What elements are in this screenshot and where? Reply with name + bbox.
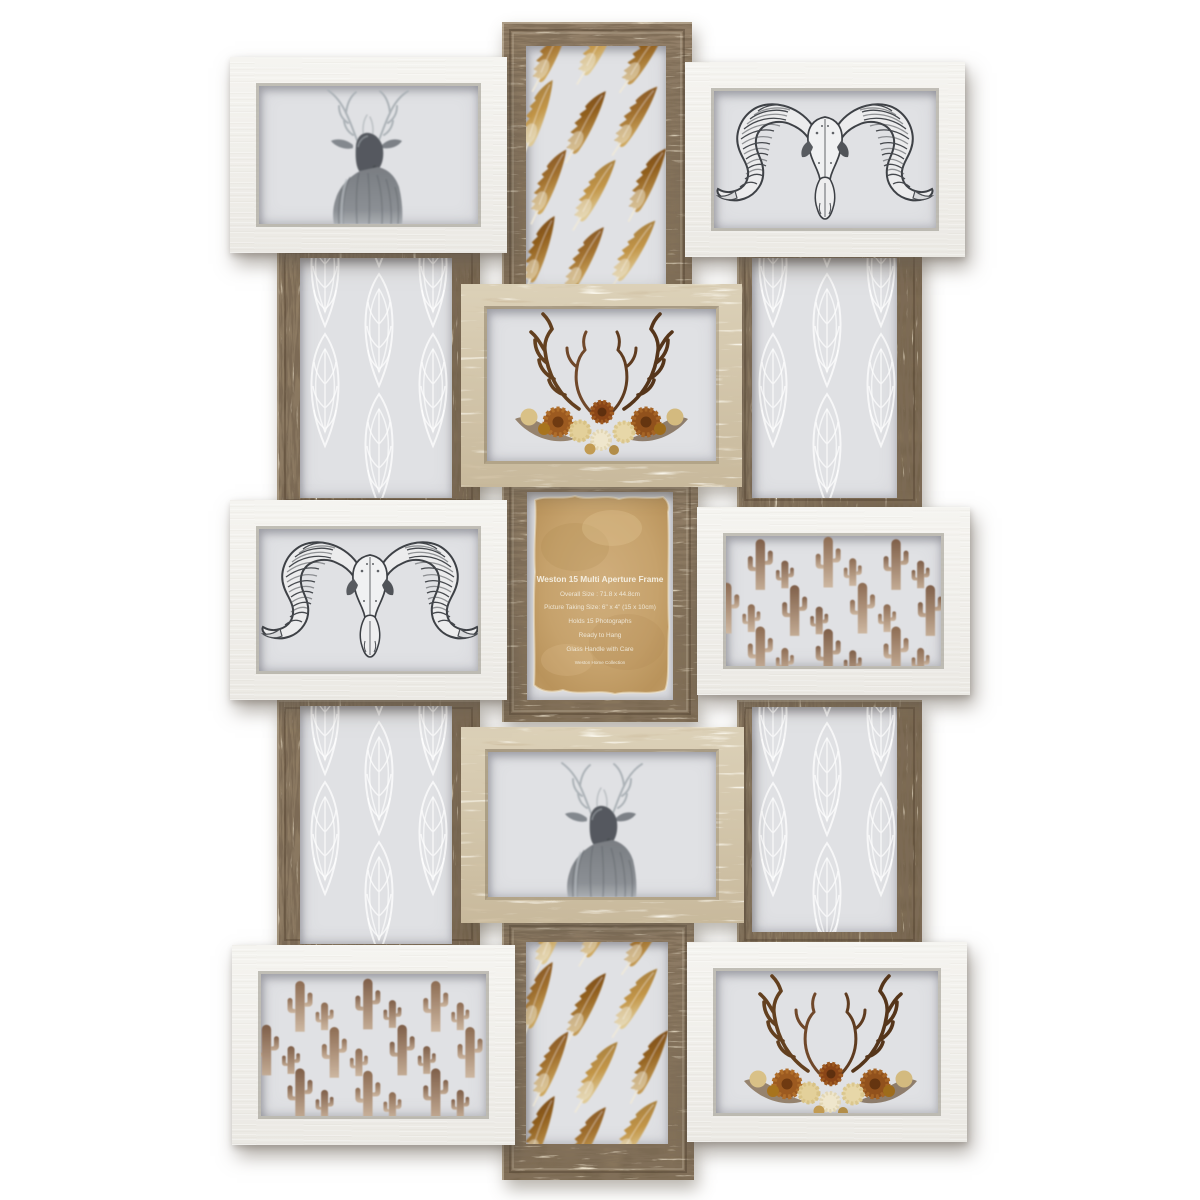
svg-text:Holds 15 Photographs: Holds 15 Photographs <box>568 618 631 625</box>
svg-text:Weston Home Collection: Weston Home Collection <box>575 660 626 665</box>
svg-text:Overall Size : 71.8 x 44.8cm: Overall Size : 71.8 x 44.8cm <box>560 591 640 598</box>
svg-text:Glass Handle with Care: Glass Handle with Care <box>566 646 634 653</box>
svg-text:Weston 15 Multi Aperture Frame: Weston 15 Multi Aperture Frame <box>537 574 664 584</box>
svg-text:Ready to Hang: Ready to Hang <box>579 632 622 639</box>
svg-text:Picture Taking Size: 6" x 4" (: Picture Taking Size: 6" x 4" (15 x 10cm) <box>544 604 656 611</box>
